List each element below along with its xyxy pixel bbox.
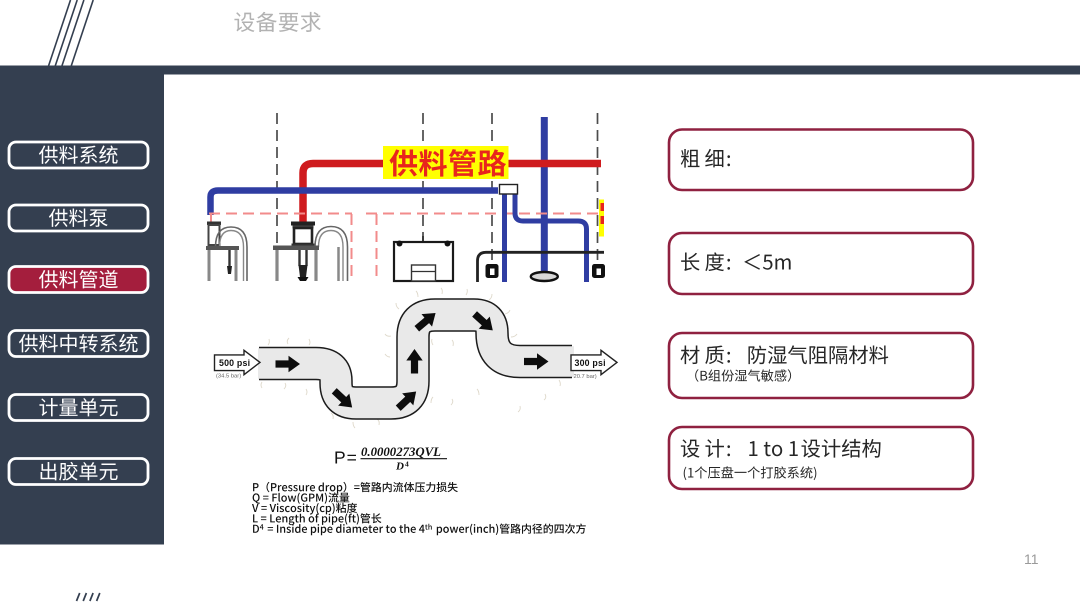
svg-text:P=: P= — [334, 448, 358, 468]
svg-text:0.0000273QVL: 0.0000273QVL — [361, 445, 441, 459]
svg-text:300 psi: 300 psi — [575, 358, 606, 368]
svg-text:D: D — [395, 461, 404, 473]
svg-text:11: 11 — [1024, 551, 1039, 567]
svg-text:4: 4 — [405, 460, 409, 469]
svg-text:(34.5 bar): (34.5 bar) — [216, 374, 241, 380]
svg-text:500 psi: 500 psi — [219, 358, 250, 368]
svg-text:20.7 bar): 20.7 bar) — [574, 374, 597, 380]
